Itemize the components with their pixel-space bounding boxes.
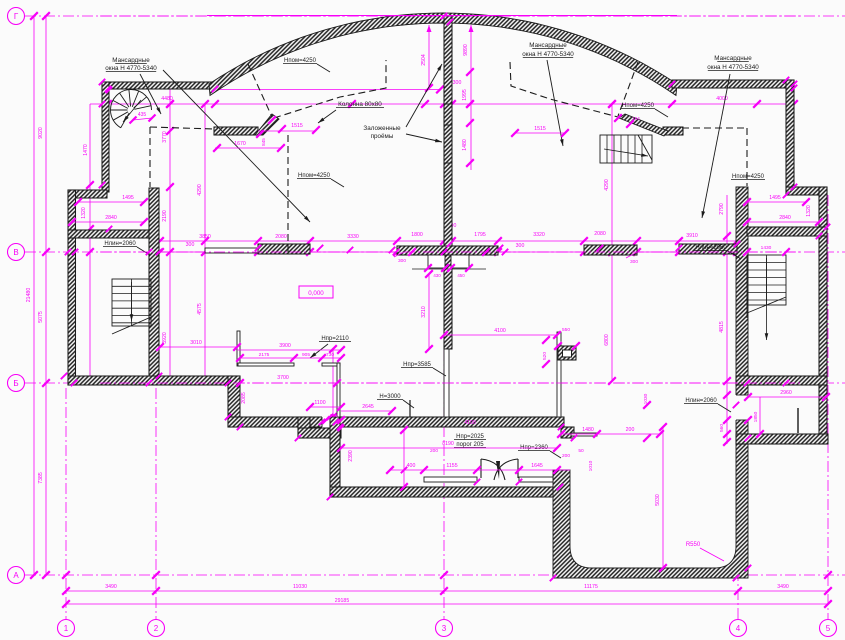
- svg-text:1495: 1495: [122, 195, 134, 201]
- svg-text:1480: 1480: [582, 427, 594, 433]
- svg-text:6800: 6800: [604, 334, 610, 346]
- svg-text:29185: 29185: [335, 598, 350, 604]
- svg-text:2085: 2085: [241, 392, 247, 404]
- svg-text:1010: 1010: [588, 460, 594, 471]
- svg-text:1800: 1800: [411, 232, 423, 238]
- svg-text:3700: 3700: [277, 375, 289, 381]
- svg-text:1850: 1850: [753, 411, 759, 422]
- svg-text:4100: 4100: [494, 328, 506, 334]
- svg-text:1645: 1645: [531, 463, 543, 469]
- svg-text:4000: 4000: [716, 96, 728, 102]
- svg-text:7385: 7385: [38, 472, 44, 484]
- svg-text:3010: 3010: [190, 340, 202, 346]
- svg-text:5030: 5030: [655, 494, 661, 506]
- svg-text:0,000: 0,000: [308, 290, 324, 297]
- svg-text:3900: 3900: [279, 343, 291, 349]
- svg-text:9020: 9020: [38, 127, 44, 139]
- svg-text:11030: 11030: [293, 584, 307, 590]
- svg-text:Колонна 80х80: Колонна 80х80: [338, 101, 382, 108]
- svg-text:1: 1: [64, 624, 69, 633]
- svg-text:845: 845: [261, 138, 266, 146]
- svg-text:730: 730: [326, 352, 334, 358]
- svg-text:300: 300: [516, 243, 525, 249]
- svg-text:2390: 2390: [348, 450, 354, 462]
- svg-text:5075: 5075: [38, 311, 44, 323]
- svg-text:4290: 4290: [197, 184, 203, 196]
- svg-text:450: 450: [457, 273, 465, 278]
- svg-text:2790: 2790: [719, 203, 725, 215]
- svg-text:2645: 2645: [362, 404, 374, 410]
- svg-text:164: 164: [632, 116, 640, 121]
- svg-text:1670: 1670: [234, 141, 246, 147]
- svg-text:5: 5: [826, 624, 831, 633]
- svg-text:2080: 2080: [275, 234, 287, 240]
- svg-text:2840: 2840: [779, 215, 791, 221]
- svg-text:Мансардные: Мансардные: [714, 55, 752, 62]
- svg-text:окна Н 4770-5340: окна Н 4770-5340: [105, 65, 157, 72]
- svg-text:1515: 1515: [291, 123, 303, 129]
- svg-text:3490: 3490: [105, 584, 117, 590]
- svg-text:Заложенные: Заложенные: [363, 125, 401, 132]
- svg-text:3210: 3210: [421, 306, 427, 318]
- svg-text:300: 300: [186, 242, 195, 248]
- svg-text:21480: 21480: [26, 288, 32, 303]
- svg-text:1100: 1100: [314, 400, 325, 406]
- svg-text:проёмы: проёмы: [371, 133, 394, 140]
- svg-text:1495: 1495: [769, 195, 781, 201]
- svg-text:2: 2: [154, 624, 159, 633]
- svg-text:1320: 1320: [81, 207, 87, 219]
- svg-text:3770: 3770: [162, 131, 168, 143]
- svg-text:1470: 1470: [83, 144, 89, 156]
- svg-text:1320: 1320: [806, 205, 812, 217]
- svg-text:2080: 2080: [594, 231, 606, 237]
- svg-text:300: 300: [398, 258, 406, 264]
- svg-text:905: 905: [302, 352, 310, 358]
- svg-text:4: 4: [736, 624, 741, 633]
- svg-text:11175: 11175: [584, 584, 598, 590]
- svg-text:4480: 4480: [161, 96, 173, 102]
- svg-text:50: 50: [578, 448, 584, 454]
- svg-text:окна Н 4770-5340: окна Н 4770-5340: [522, 51, 574, 58]
- svg-text:окна Н 4770-5340: окна Н 4770-5340: [707, 64, 759, 71]
- svg-text:430: 430: [433, 273, 441, 278]
- svg-text:435: 435: [138, 112, 147, 118]
- svg-text:4290: 4290: [604, 179, 610, 191]
- svg-text:1155: 1155: [446, 463, 457, 469]
- svg-text:Г: Г: [14, 12, 19, 21]
- svg-text:1795: 1795: [474, 232, 486, 238]
- svg-text:4815: 4815: [719, 321, 725, 333]
- svg-text:3910: 3910: [686, 233, 698, 239]
- svg-text:R550: R550: [686, 542, 701, 548]
- svg-text:В: В: [13, 248, 18, 257]
- svg-text:2504: 2504: [421, 54, 427, 66]
- svg-text:1515: 1515: [534, 126, 546, 132]
- svg-text:550: 550: [562, 327, 570, 333]
- svg-text:200: 200: [562, 453, 570, 459]
- svg-text:3: 3: [442, 624, 447, 633]
- svg-text:2190: 2190: [162, 210, 168, 222]
- svg-text:4100: 4100: [464, 420, 476, 426]
- svg-text:А: А: [13, 571, 19, 580]
- svg-text:1430: 1430: [761, 245, 772, 251]
- svg-text:1995: 1995: [462, 89, 468, 101]
- svg-text:1480: 1480: [462, 139, 468, 151]
- svg-text:2840: 2840: [105, 215, 117, 221]
- svg-text:400: 400: [407, 463, 416, 469]
- svg-text:3490: 3490: [777, 584, 789, 590]
- svg-text:Мансардные: Мансардные: [112, 57, 150, 64]
- svg-text:300: 300: [453, 80, 462, 86]
- svg-text:560: 560: [719, 424, 725, 432]
- svg-text:3330: 3330: [347, 234, 359, 240]
- svg-text:3850: 3850: [199, 234, 211, 240]
- svg-text:200: 200: [626, 427, 635, 433]
- svg-text:Б: Б: [13, 379, 18, 388]
- svg-text:2960: 2960: [780, 390, 792, 396]
- svg-text:3920: 3920: [162, 332, 168, 344]
- svg-text:4575: 4575: [197, 303, 203, 315]
- svg-text:8190: 8190: [442, 441, 454, 447]
- svg-text:520: 520: [542, 352, 548, 360]
- svg-text:9890: 9890: [463, 44, 469, 56]
- svg-text:200: 200: [430, 448, 438, 454]
- svg-text:Мансардные: Мансардные: [529, 42, 567, 49]
- svg-text:2175: 2175: [259, 352, 270, 358]
- svg-text:300: 300: [630, 259, 638, 265]
- svg-text:3320: 3320: [533, 232, 545, 238]
